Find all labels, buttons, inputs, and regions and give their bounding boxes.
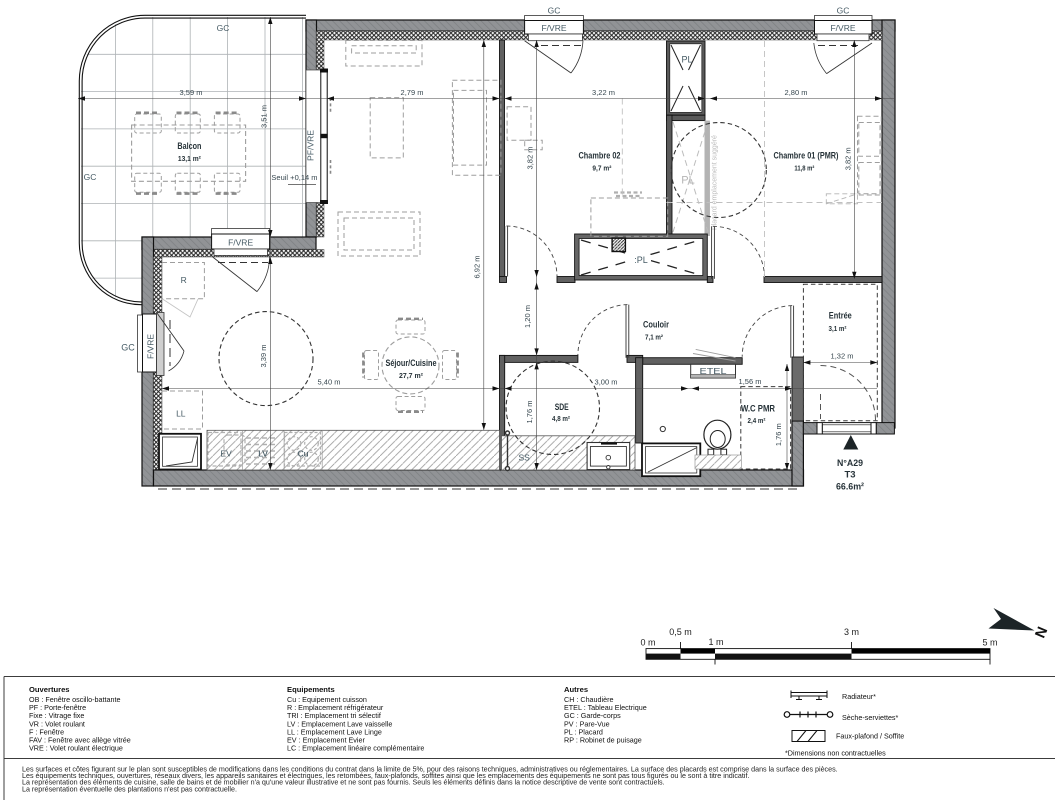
svg-text:3,59 m: 3,59 m xyxy=(180,88,203,97)
svg-text:GC: GC xyxy=(837,6,850,16)
svg-text:Sèche-serviettes*: Sèche-serviettes* xyxy=(842,713,899,722)
svg-text:5 m: 5 m xyxy=(982,638,997,648)
svg-text::PL: :PL xyxy=(634,255,648,265)
svg-text:Faux-plafond / Soffite: Faux-plafond / Soffite xyxy=(836,732,904,741)
svg-text:3,82 m: 3,82 m xyxy=(844,147,853,170)
svg-text:66.6m²: 66.6m² xyxy=(836,481,864,492)
svg-text:1 m: 1 m xyxy=(708,637,723,647)
svg-text:11,8 m²: 11,8 m² xyxy=(794,163,814,172)
svg-text:1,32 m: 1,32 m xyxy=(831,352,854,361)
svg-text:0 m: 0 m xyxy=(640,638,655,648)
svg-text:N°A29: N°A29 xyxy=(837,458,863,469)
svg-text:Chambre 02: Chambre 02 xyxy=(579,151,621,162)
svg-text:EV: EV xyxy=(220,448,232,458)
svg-text:LL: LL xyxy=(176,409,186,419)
svg-text:GC: GC xyxy=(84,172,97,182)
svg-text:9,7 m²: 9,7 m² xyxy=(592,163,611,172)
svg-text:1,56 m: 1,56 m xyxy=(739,377,762,386)
svg-text:Cu: Cu xyxy=(298,448,309,458)
svg-text:2,79 m: 2,79 m xyxy=(401,88,424,97)
svg-text:3,39 m: 3,39 m xyxy=(259,345,268,368)
svg-text:PL: PL xyxy=(681,175,694,187)
svg-text:27,7 m²: 27,7 m² xyxy=(399,371,423,380)
svg-text:R: R xyxy=(181,275,187,285)
svg-text:F/VRE: F/VRE xyxy=(830,23,855,33)
svg-text:*Dimensions non contractuelles: *Dimensions non contractuelles xyxy=(785,749,886,758)
svg-text:3,51 m: 3,51 m xyxy=(260,105,269,128)
svg-text:Ouvertures: Ouvertures xyxy=(29,685,70,694)
svg-text:GC: GC xyxy=(548,6,561,16)
svg-text:0,5 m: 0,5 m xyxy=(669,627,692,637)
svg-text:3,00 m: 3,00 m xyxy=(595,378,618,387)
svg-text:VRE : Volet roulant électrique: VRE : Volet roulant électrique xyxy=(29,744,123,753)
svg-text:GC: GC xyxy=(121,343,135,353)
svg-text:3,82 m: 3,82 m xyxy=(526,147,535,170)
svg-text:SDE: SDE xyxy=(555,402,569,412)
svg-text:2,80 m: 2,80 m xyxy=(785,88,808,97)
svg-text:Equipements: Equipements xyxy=(287,685,335,694)
svg-text:3 m: 3 m xyxy=(844,627,859,637)
svg-text:3,1 m²: 3,1 m² xyxy=(829,324,847,333)
svg-text:LC : Emplacement linéaire comp: LC : Emplacement linéaire complémentaire xyxy=(287,744,424,753)
svg-text:PF/VRE: PF/VRE xyxy=(306,130,316,161)
svg-text:T3: T3 xyxy=(844,470,855,481)
svg-text:F/VRE: F/VRE xyxy=(146,334,156,359)
svg-text:F/VRE: F/VRE xyxy=(228,238,253,248)
svg-text:W.C PMR: W.C PMR xyxy=(741,403,775,413)
svg-text:Couloir: Couloir xyxy=(643,319,669,330)
svg-text:PL: PL xyxy=(681,55,692,65)
svg-text:5,40 m: 5,40 m xyxy=(318,378,341,387)
svg-text:Séjour/Cuisine: Séjour/Cuisine xyxy=(386,358,437,369)
svg-text:ETEL: ETEL xyxy=(700,366,727,376)
svg-text:1,20 m: 1,20 m xyxy=(523,305,532,328)
svg-text:Autres: Autres xyxy=(564,685,588,694)
svg-text:7,1 m²: 7,1 m² xyxy=(645,332,663,341)
svg-text:Entrée: Entrée xyxy=(829,311,852,322)
svg-text:3,22 m: 3,22 m xyxy=(592,88,615,97)
svg-text:LV: LV xyxy=(258,448,268,458)
svg-text:Seuil +0,14 m: Seuil +0,14 m xyxy=(271,173,317,182)
svg-text:Balcon: Balcon xyxy=(177,141,201,152)
svg-text:13,1 m²: 13,1 m² xyxy=(178,154,201,163)
svg-text:La représentation éventuelle d: La représentation éventuelle des plantat… xyxy=(22,785,237,793)
svg-text:F/VRE: F/VRE xyxy=(541,23,566,33)
svg-text:1,76 m: 1,76 m xyxy=(525,401,534,424)
svg-text:Radiateur*: Radiateur* xyxy=(842,692,876,701)
svg-text:SS: SS xyxy=(519,453,531,463)
svg-text:4,8 m²: 4,8 m² xyxy=(552,414,570,423)
svg-text:GC: GC xyxy=(217,23,230,33)
svg-text:Placard emplacement suggéré: Placard emplacement suggéré xyxy=(712,135,719,230)
svg-text:Chambre 01 (PMR): Chambre 01 (PMR) xyxy=(774,151,839,162)
svg-text:6,92 m: 6,92 m xyxy=(473,256,482,279)
svg-text:2,4 m²: 2,4 m² xyxy=(748,416,766,425)
svg-text:RP : Robinet de puisage: RP : Robinet de puisage xyxy=(564,736,642,745)
svg-text:1,76 m: 1,76 m xyxy=(774,423,783,446)
